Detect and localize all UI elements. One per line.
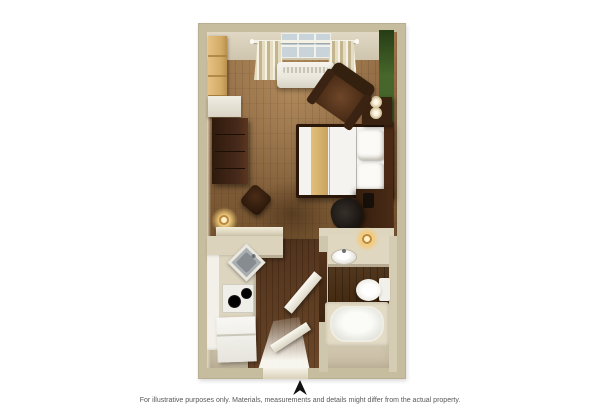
vanity-lamp-icon	[362, 234, 372, 244]
drawer-line	[215, 151, 245, 152]
desk	[356, 189, 393, 229]
floor-plan-figure: For illustrative purposes only. Material…	[0, 0, 600, 420]
bathtub	[330, 306, 384, 342]
curtain-finial	[355, 39, 359, 44]
floor-lamp-icon	[219, 215, 229, 225]
desk-accessory	[363, 193, 374, 208]
burner-icon	[228, 295, 241, 308]
closet-shelves	[208, 36, 227, 96]
toilet	[356, 279, 381, 301]
bed-runner	[311, 127, 328, 195]
bathroom-right-wall	[389, 236, 397, 372]
window-mullion	[282, 45, 330, 47]
disclaimer-text: For illustrative purposes only. Material…	[0, 397, 600, 404]
north-arrow-icon	[291, 380, 309, 395]
drawer-line	[215, 168, 245, 169]
shelf-line	[208, 55, 227, 57]
dresser	[212, 118, 248, 184]
fridge-split-line	[217, 333, 256, 336]
wardrobe-shelf	[208, 96, 241, 117]
burner-icon	[241, 288, 252, 299]
drawer-line	[215, 134, 245, 135]
duvet-crease	[329, 127, 330, 195]
entry-doorway	[263, 368, 308, 379]
shelf-line	[208, 75, 227, 77]
refrigerator	[216, 316, 257, 362]
window	[281, 33, 331, 58]
ac-vent	[283, 67, 328, 73]
cooktop	[222, 284, 254, 313]
faucet-icon	[342, 249, 346, 253]
curtain-finial	[250, 39, 254, 44]
table-lamp-icon	[370, 107, 382, 119]
pillow	[357, 130, 385, 160]
